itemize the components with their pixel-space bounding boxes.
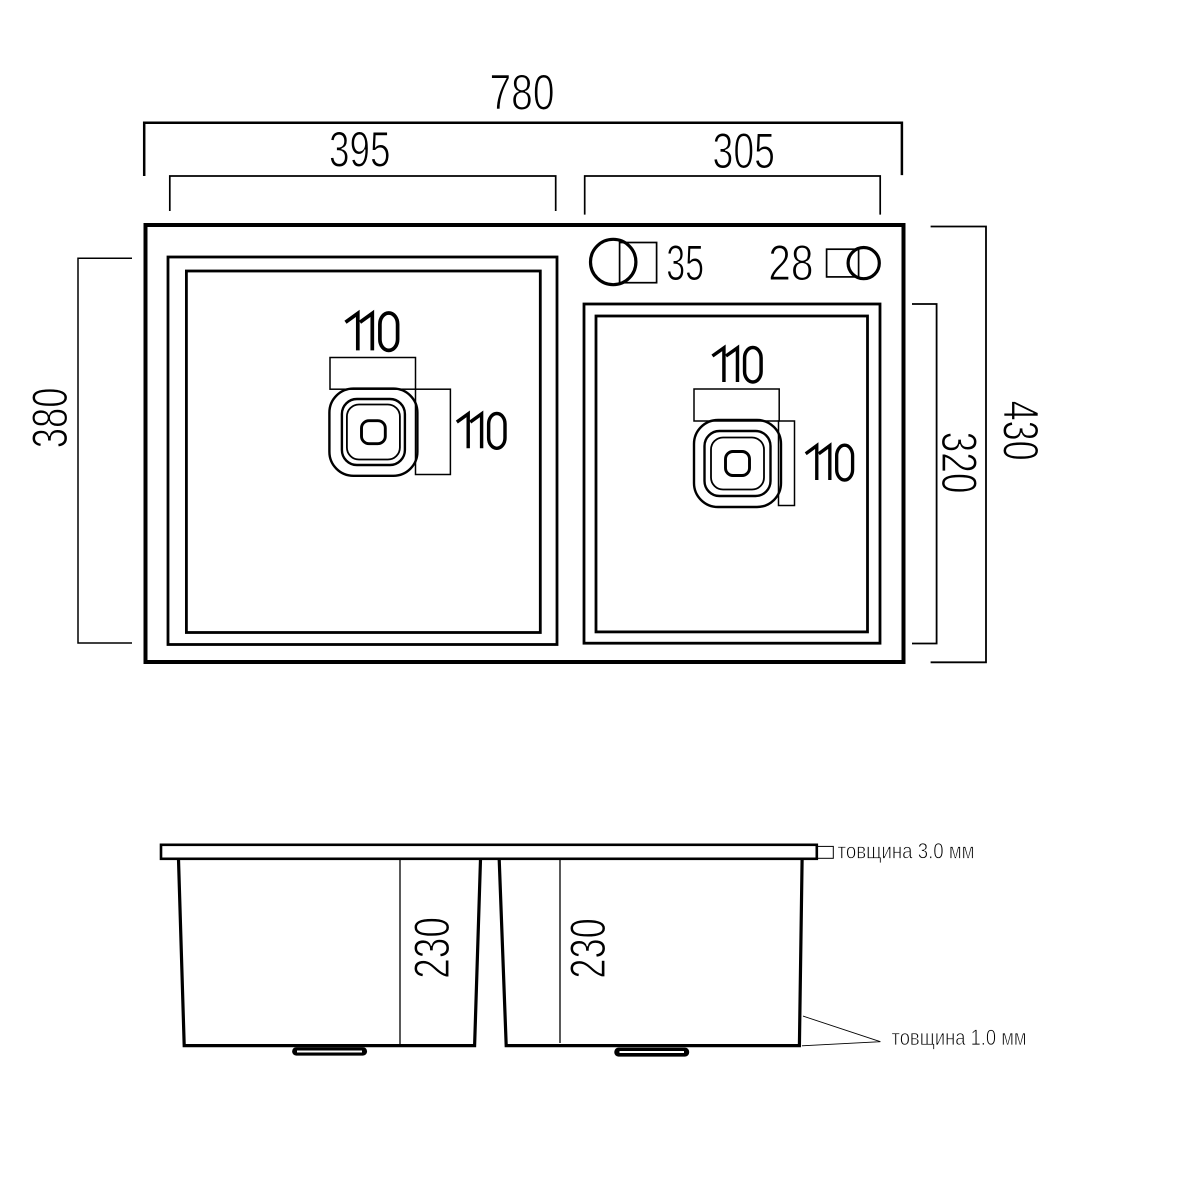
svg-text:товщина 3.0 мм: товщина 3.0 мм [838,838,975,863]
svg-text:35: 35 [666,235,704,291]
svg-text:395: 395 [329,122,391,178]
svg-text:товщина 1.0 мм: товщина 1.0 мм [892,1025,1027,1050]
svg-text:28: 28 [768,235,813,291]
svg-text:380: 380 [22,388,78,449]
svg-text:230: 230 [404,917,460,979]
svg-text:430: 430 [992,401,1048,461]
svg-text:230: 230 [560,918,616,978]
svg-text:780: 780 [490,65,555,121]
svg-text:305: 305 [713,123,776,179]
svg-text:320: 320 [931,432,987,494]
